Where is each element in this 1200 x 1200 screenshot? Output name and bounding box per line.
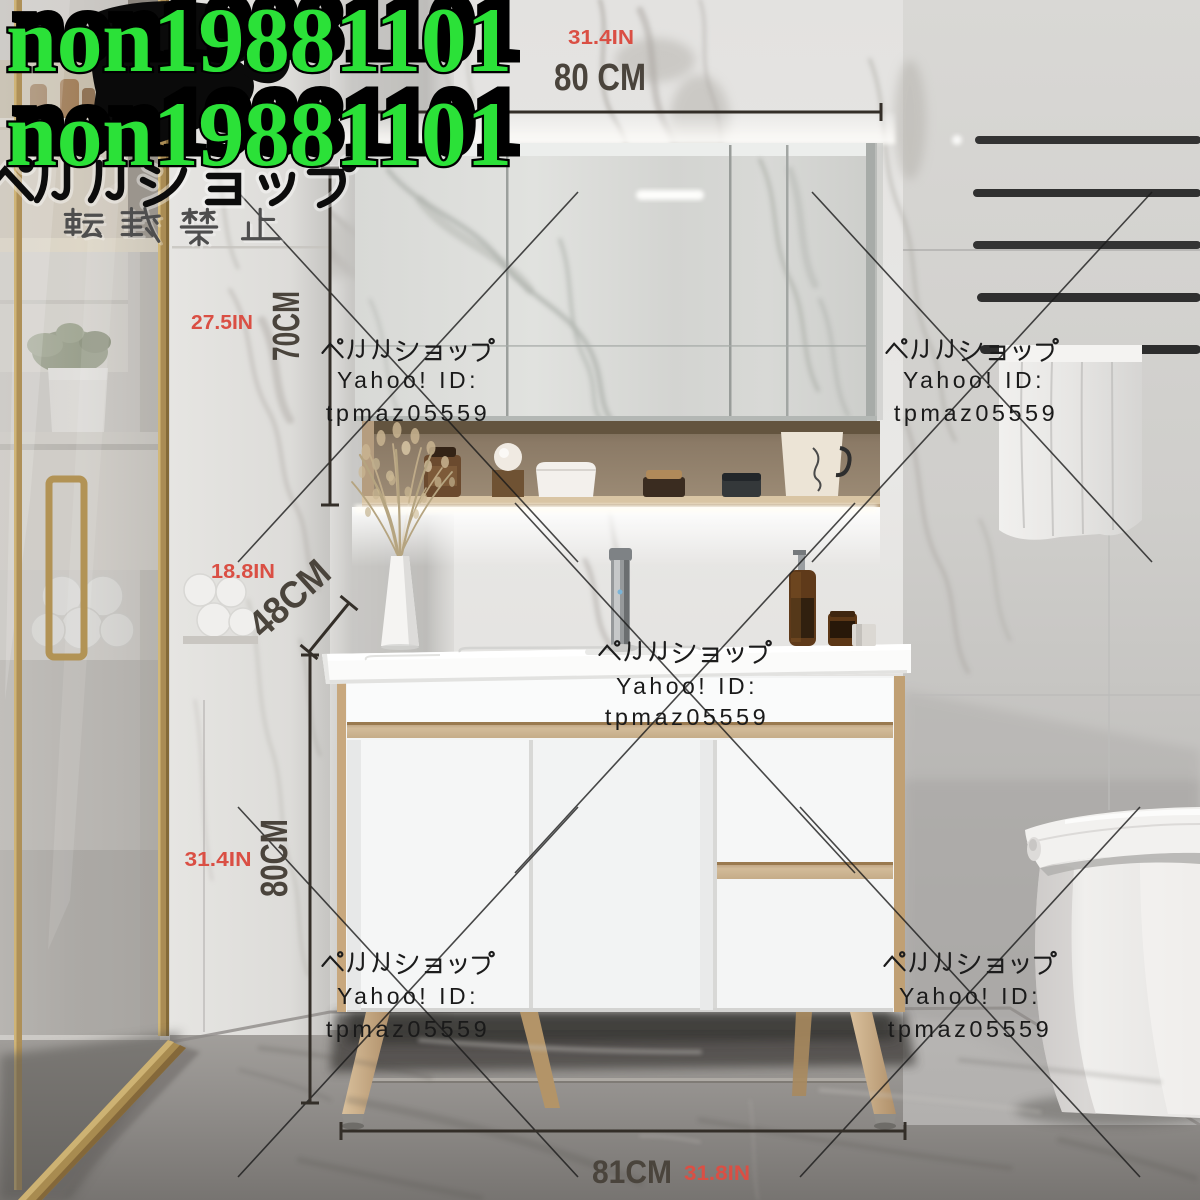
svg-text:tpmaz05559: tpmaz05559 bbox=[326, 1016, 490, 1042]
svg-text:27.5IN: 27.5IN bbox=[191, 312, 253, 334]
svg-text:tpmaz05559: tpmaz05559 bbox=[888, 1016, 1052, 1042]
svg-text:70CM: 70CM bbox=[266, 291, 308, 361]
svg-text:31.4IN: 31.4IN bbox=[568, 27, 634, 49]
svg-text:tpmaz05559: tpmaz05559 bbox=[326, 400, 490, 426]
svg-text:Yahoo! ID:: Yahoo! ID: bbox=[903, 367, 1045, 393]
svg-text:18.8IN: 18.8IN bbox=[211, 561, 275, 583]
svg-text:non19881101: non19881101 bbox=[6, 83, 512, 185]
svg-text:Yahoo! ID:: Yahoo! ID: bbox=[337, 983, 479, 1009]
svg-text:tpmaz05559: tpmaz05559 bbox=[894, 400, 1058, 426]
svg-text:80CM: 80CM bbox=[254, 819, 296, 897]
svg-text:81CM: 81CM bbox=[592, 1154, 672, 1190]
svg-text:Yahoo! ID:: Yahoo! ID: bbox=[899, 983, 1041, 1009]
svg-text:31.8IN: 31.8IN bbox=[684, 1162, 750, 1185]
svg-text:80 CM: 80 CM bbox=[554, 57, 646, 99]
svg-text:Yahoo! ID:: Yahoo! ID: bbox=[616, 673, 758, 699]
svg-text:tpmaz05559: tpmaz05559 bbox=[605, 704, 769, 730]
svg-text:Yahoo! ID:: Yahoo! ID: bbox=[337, 367, 479, 393]
svg-text:31.4IN: 31.4IN bbox=[185, 849, 252, 871]
